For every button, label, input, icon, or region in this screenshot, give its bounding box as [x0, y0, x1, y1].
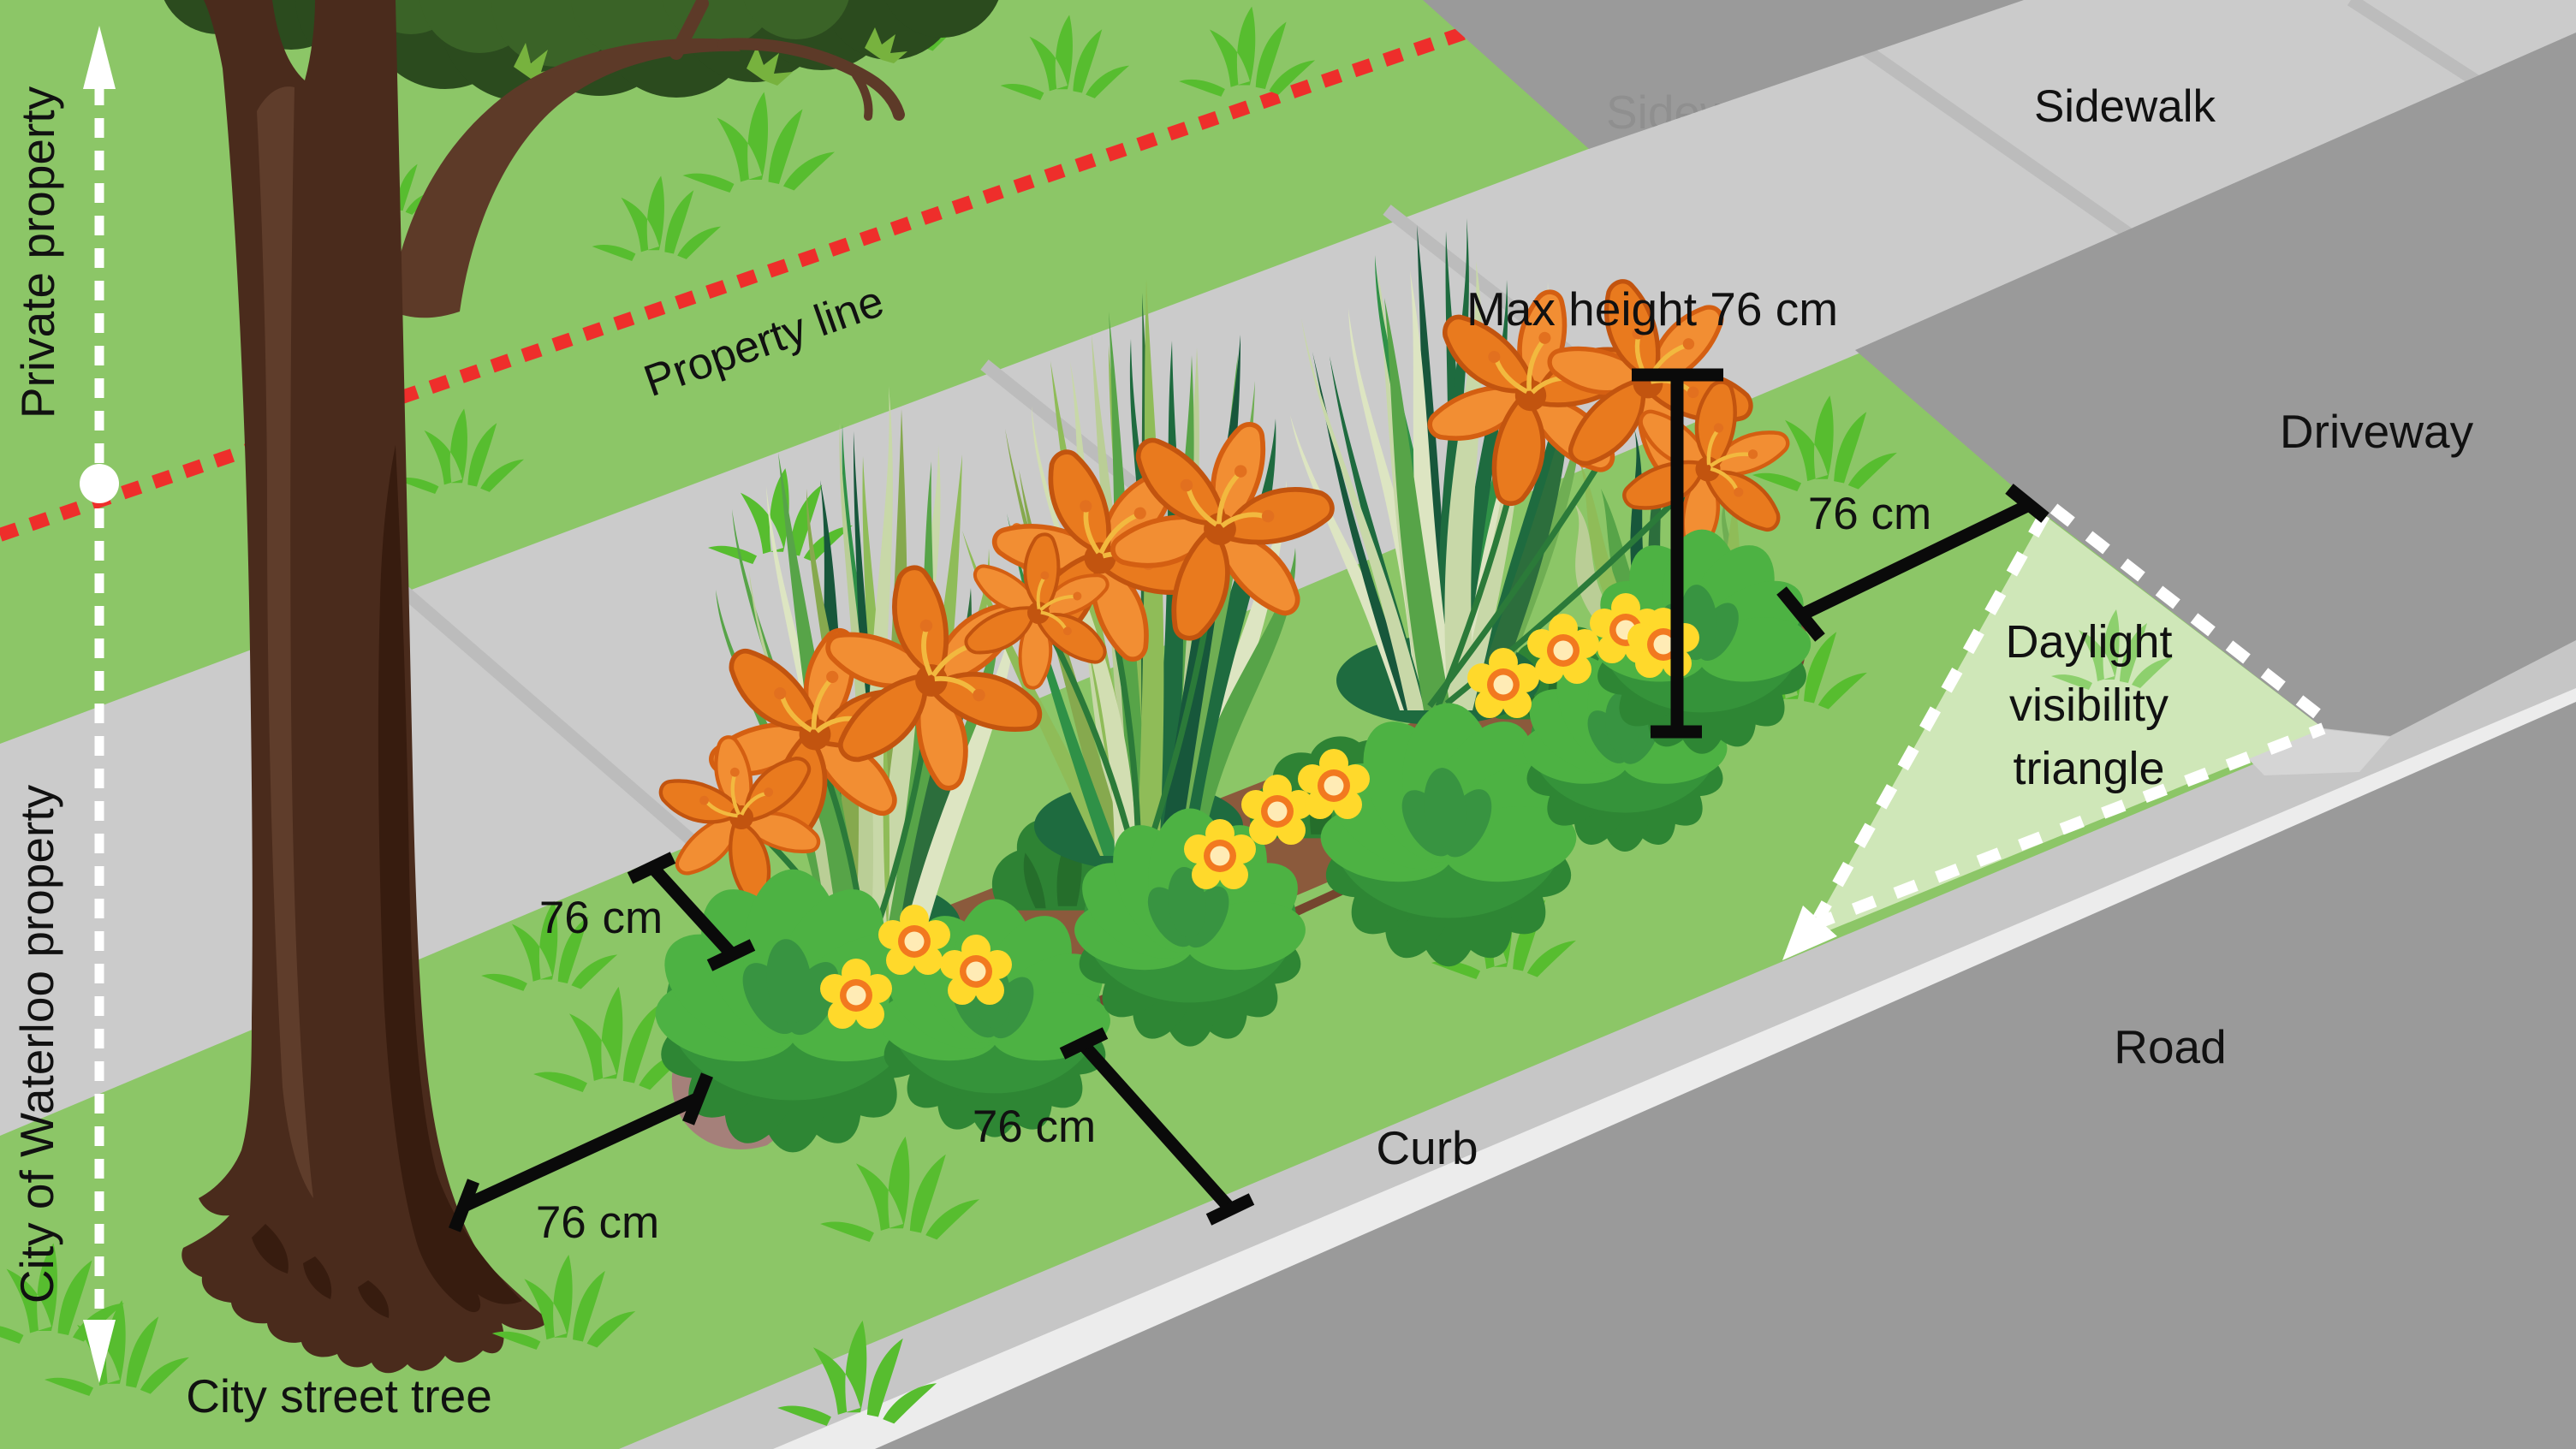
svg-text:triangle: triangle [2013, 743, 2164, 794]
svg-text:76 cm: 76 cm [1808, 489, 1931, 539]
svg-text:City of Waterloo property: City of Waterloo property [10, 784, 63, 1304]
svg-text:visibility: visibility [2009, 680, 2168, 731]
svg-text:Road: Road [2114, 1020, 2226, 1073]
svg-text:Private property: Private property [11, 86, 64, 419]
svg-text:City street tree: City street tree [186, 1369, 492, 1422]
svg-text:Daylight: Daylight [2005, 616, 2172, 668]
svg-text:Driveway: Driveway [2280, 405, 2474, 458]
svg-text:76 cm: 76 cm [536, 1197, 659, 1248]
svg-text:Curb: Curb [1376, 1121, 1478, 1174]
svg-text:Sidewalk: Sidewalk [2034, 81, 2216, 132]
svg-text:76 cm: 76 cm [539, 893, 663, 943]
svg-text:76 cm: 76 cm [973, 1102, 1096, 1152]
svg-text:Max height 76 cm: Max height 76 cm [1466, 282, 1838, 336]
